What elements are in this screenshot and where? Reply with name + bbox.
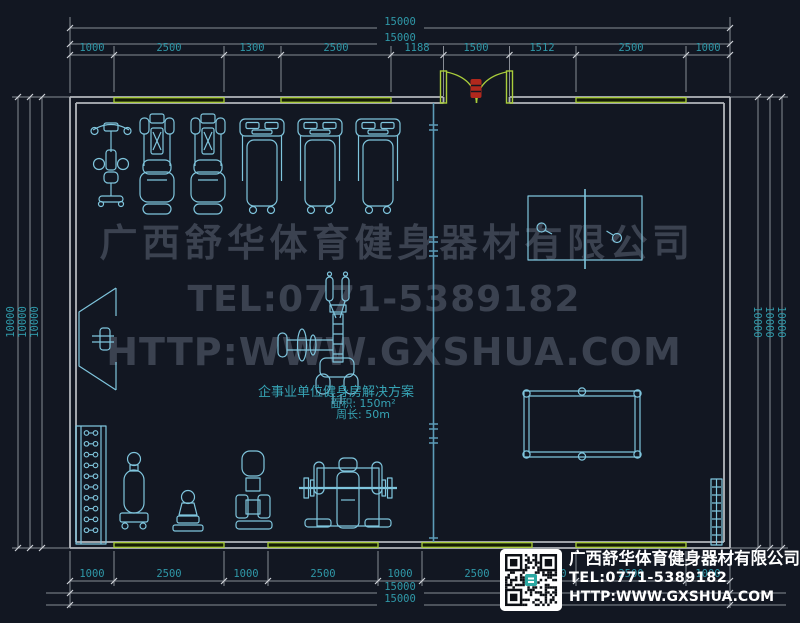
window-bottom-1 <box>114 543 224 548</box>
dim-bottom-total-outer: 15000 <box>384 593 416 605</box>
dim-bottom-seg: 2500 <box>156 568 181 580</box>
title-block: 广西舒华体育健身器材有限公司 TEL:0771-5389182 HTTP:WWW… <box>500 549 800 611</box>
dim-top-seg: 1000 <box>695 42 720 54</box>
floorplan-drawing: 广西舒华体育健身器材有限公司 TEL:0771-5389182 HTTP:WWW… <box>0 0 800 623</box>
dim-right: 10000 <box>763 306 775 338</box>
window-bottom-3 <box>422 543 532 548</box>
watermark-company: 广西舒华体育健身器材有限公司 <box>99 221 694 265</box>
title-block-text: 广西舒华体育健身器材有限公司 TEL:0771-5389182 HTTP:WWW… <box>569 549 800 608</box>
dim-top-seg: 1188 <box>404 42 429 54</box>
dim-top-seg: 1512 <box>529 42 554 54</box>
room-label-perimeter: 周长: 50m <box>336 408 390 421</box>
dim-top-total-outer: 15000 <box>384 16 416 28</box>
window-bottom-2 <box>268 543 378 548</box>
company-url: HTTP:WWW.GXSHUA.COM <box>569 588 800 608</box>
dim-right: 10000 <box>751 306 763 338</box>
dim-top-seg: 1500 <box>463 42 488 54</box>
window-top-3 <box>576 98 686 103</box>
dim-left: 10000 <box>5 306 17 338</box>
dim-right: 10000 <box>775 306 787 338</box>
company-tel: TEL:0771-5389182 <box>569 569 800 589</box>
watermark-url: HTTP:WWW.GXSHUA.COM <box>106 330 682 374</box>
company-name: 广西舒华体育健身器材有限公司 <box>569 549 800 569</box>
dim-top-seg: 1300 <box>239 42 264 54</box>
dim-bottom-seg: 1000 <box>387 568 412 580</box>
dim-left: 10000 <box>29 306 41 338</box>
dim-top-seg: 1000 <box>79 42 104 54</box>
dim-bottom-seg: 1000 <box>233 568 258 580</box>
door-marker <box>471 79 482 98</box>
window-top-1 <box>114 98 224 103</box>
dim-top-seg: 2500 <box>618 42 643 54</box>
dim-bottom-total-inner: 15000 <box>384 581 416 593</box>
dim-bottom-seg: 2500 <box>310 568 335 580</box>
watermark-tel: TEL:0771-5389182 <box>188 279 581 320</box>
dim-top-seg: 2500 <box>323 42 348 54</box>
qr-center-logo <box>525 574 537 586</box>
dim-left: 10000 <box>17 306 29 338</box>
window-top-2 <box>281 98 391 103</box>
cad-floorplan-screen: 广西舒华体育健身器材有限公司 TEL:0771-5389182 HTTP:WWW… <box>0 0 800 623</box>
window-bottom-4 <box>576 543 686 548</box>
dim-bottom-seg: 2500 <box>464 568 489 580</box>
qr-code <box>500 549 562 611</box>
dim-bottom-seg: 1000 <box>79 568 104 580</box>
dim-top-seg: 2500 <box>156 42 181 54</box>
qr-code-image <box>500 549 562 611</box>
